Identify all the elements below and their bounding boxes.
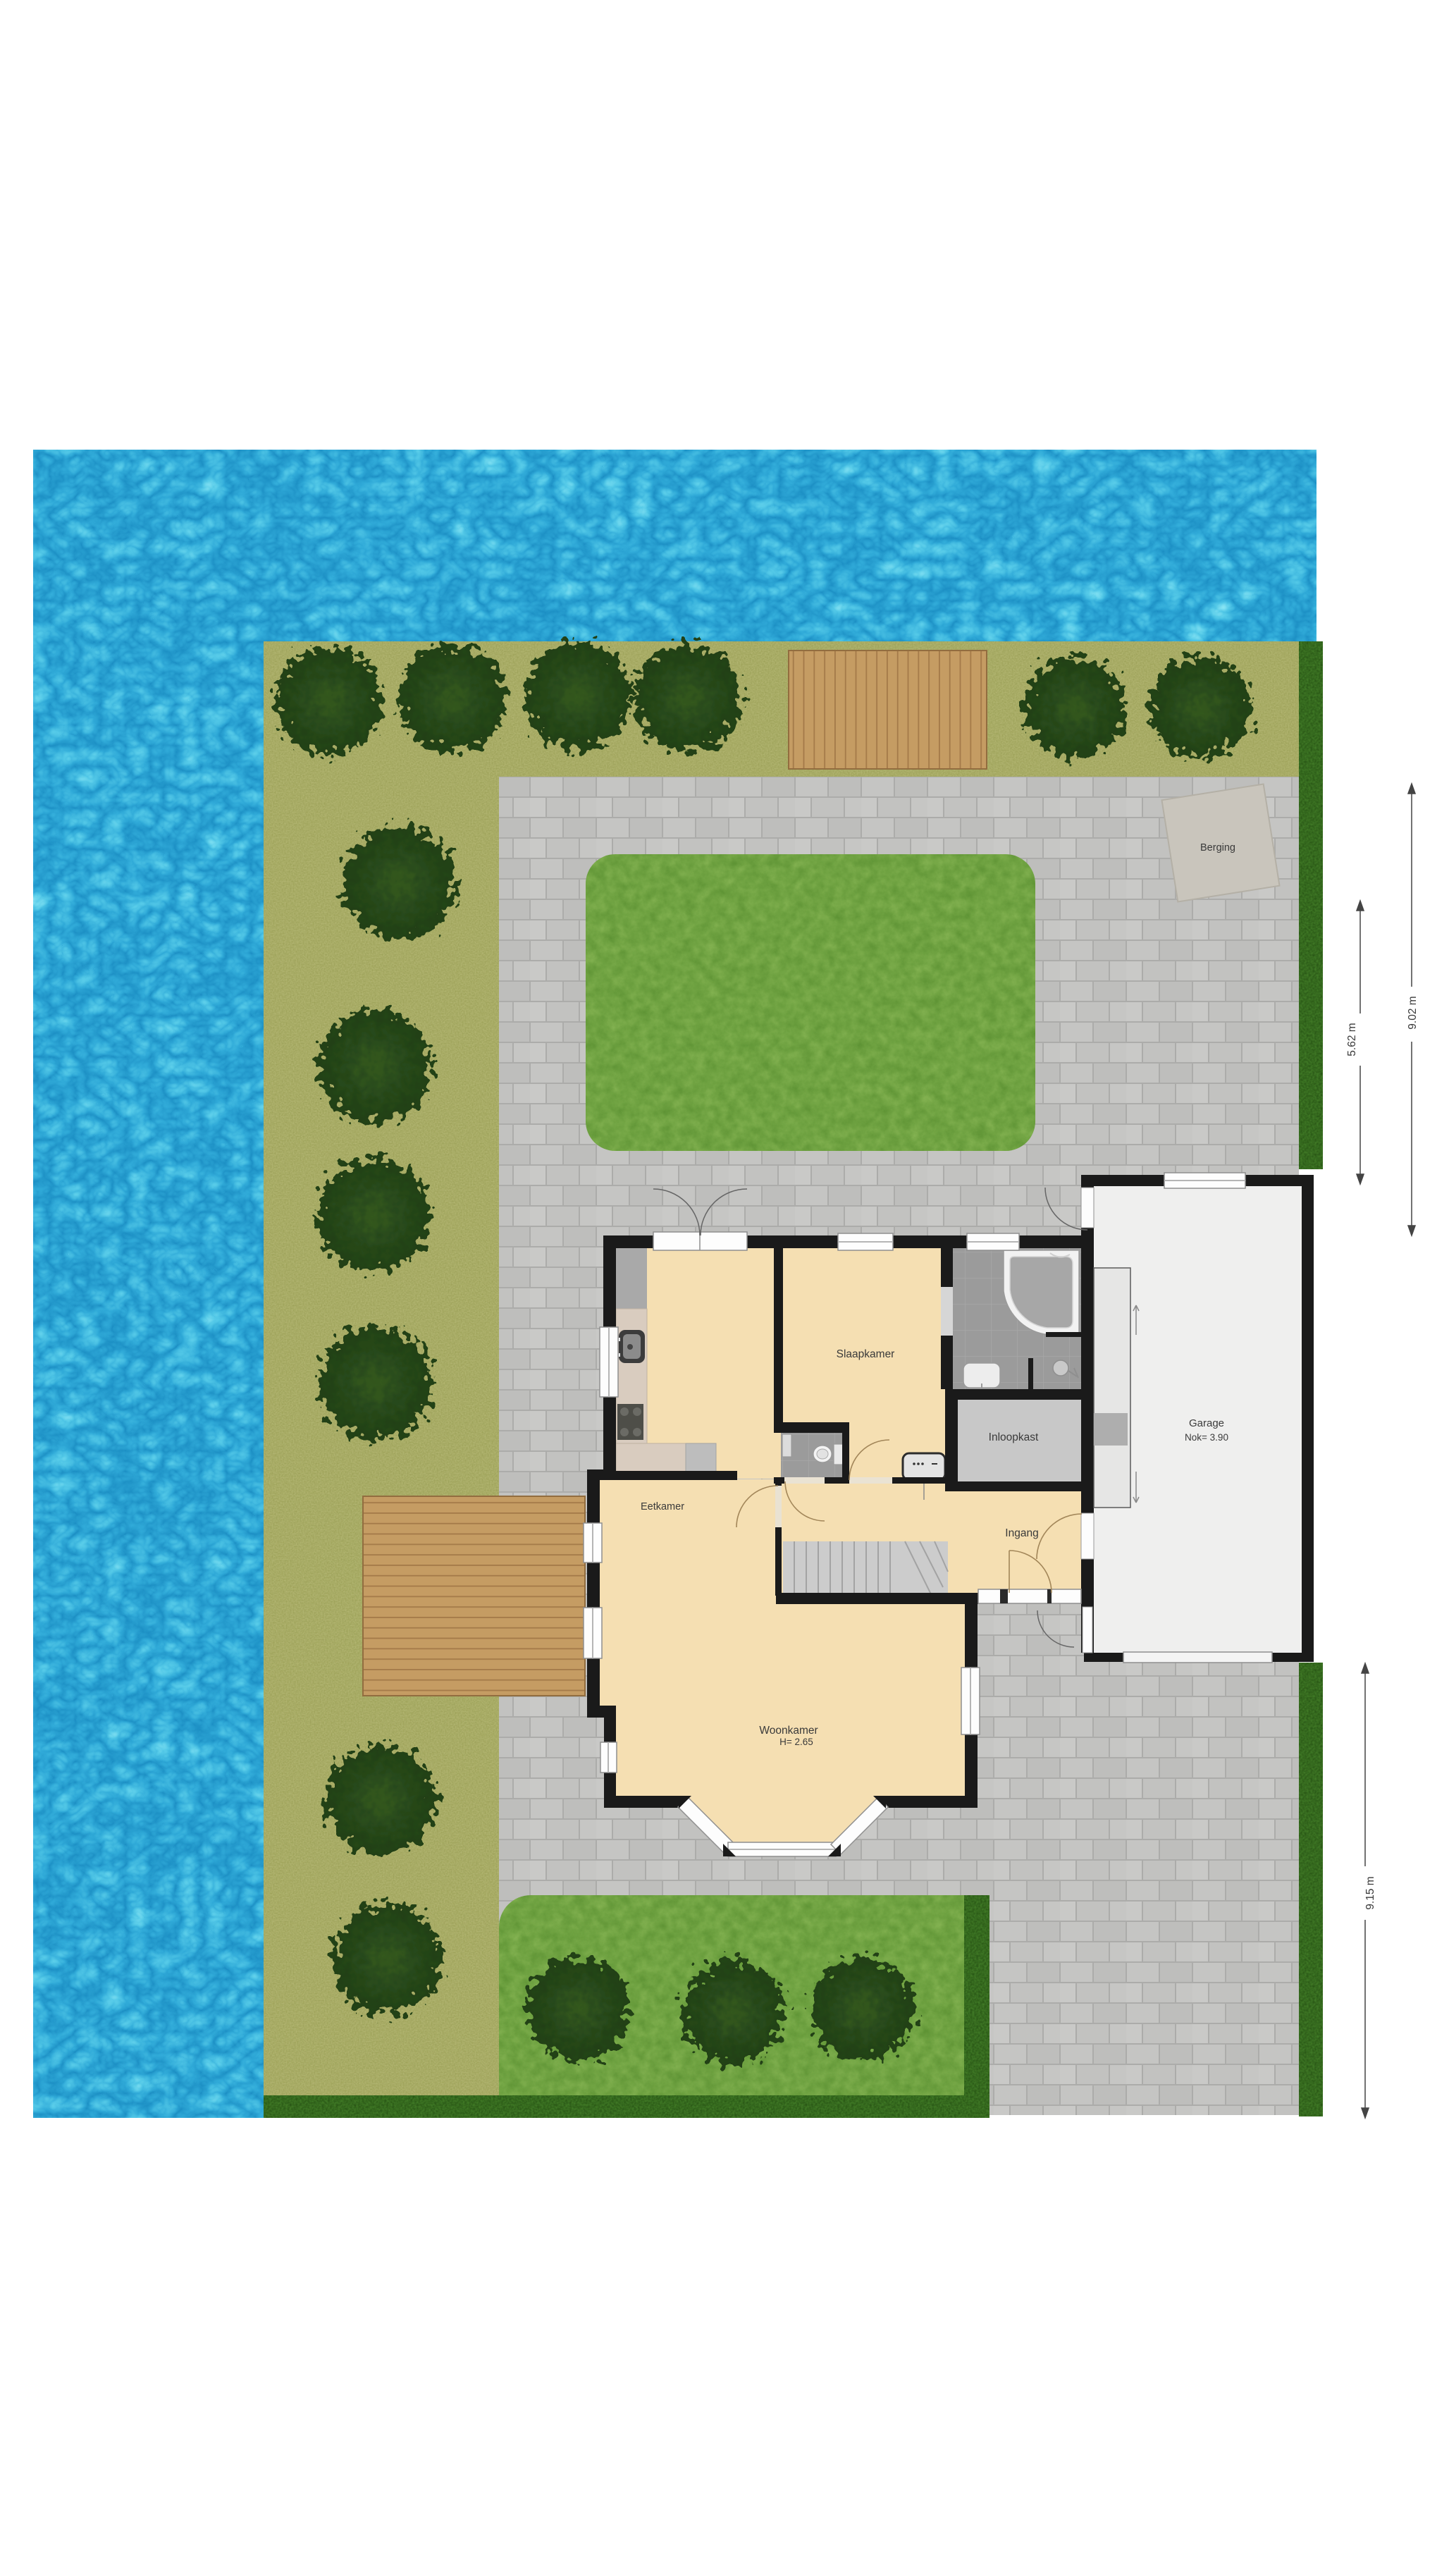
svg-text:Eetkamer: Eetkamer (641, 1501, 684, 1512)
svg-text:H= 2.65: H= 2.65 (779, 1737, 813, 1747)
svg-text:Slaapkamer: Slaapkamer (837, 1348, 895, 1360)
svg-text:Ingang: Ingang (1005, 1527, 1038, 1539)
svg-text:5.62 m: 5.62 m (1346, 1023, 1358, 1056)
svg-text:9.15 m: 9.15 m (1364, 1876, 1376, 1909)
svg-text:Woonkamer: Woonkamer (759, 1725, 818, 1737)
svg-text:9.02 m: 9.02 m (1407, 996, 1419, 1029)
svg-text:Garage: Garage (1189, 1417, 1224, 1429)
svg-text:Berging: Berging (1200, 842, 1235, 853)
svg-text:Inloopkast: Inloopkast (989, 1431, 1039, 1443)
svg-text:Nok= 3.90: Nok= 3.90 (1185, 1432, 1228, 1443)
